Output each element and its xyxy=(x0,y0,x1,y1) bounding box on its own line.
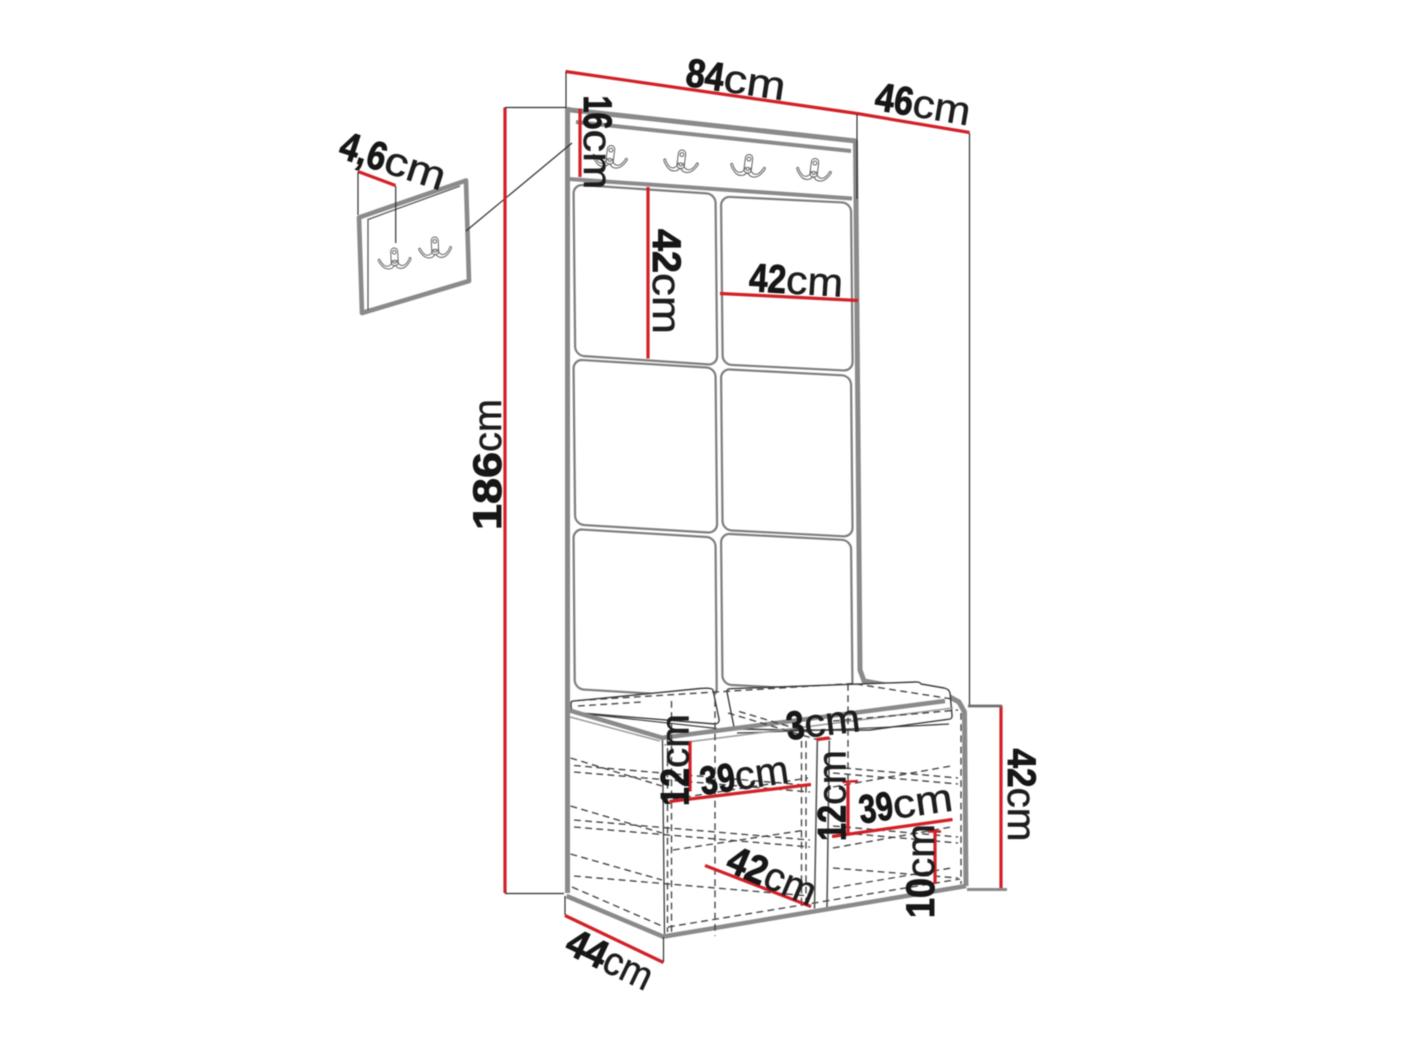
svg-text:10cm: 10cm xyxy=(899,824,943,918)
svg-text:186cm: 186cm xyxy=(466,399,510,530)
svg-text:16cm: 16cm xyxy=(575,96,619,190)
svg-text:42cm: 42cm xyxy=(999,749,1043,842)
svg-text:12cm: 12cm xyxy=(654,714,698,806)
svg-text:42cm: 42cm xyxy=(644,229,688,334)
svg-text:12cm: 12cm xyxy=(811,750,855,841)
svg-text:3cm: 3cm xyxy=(784,696,863,749)
svg-text:42cm: 42cm xyxy=(748,256,845,306)
